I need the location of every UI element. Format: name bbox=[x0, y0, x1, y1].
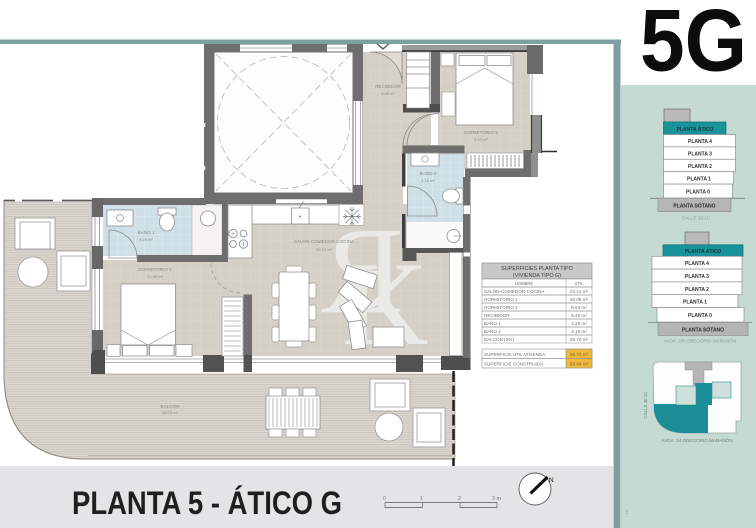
svg-text:CALLE 30.1C: CALLE 30.1C bbox=[643, 392, 648, 419]
svg-text:PLANTA SÓTANO: PLANTA SÓTANO bbox=[673, 201, 715, 209]
svg-text:BAÑO 2: BAÑO 2 bbox=[484, 328, 501, 334]
svg-text:NOMBRE: NOMBRE bbox=[515, 281, 534, 286]
svg-text:4.29 m²: 4.29 m² bbox=[571, 321, 587, 326]
svg-text:PLANTA 1: PLANTA 1 bbox=[683, 300, 707, 306]
svg-text:PLANTA 5 - ÁTICO G: PLANTA 5 - ÁTICO G bbox=[72, 485, 342, 521]
svg-text:8.48 m²: 8.48 m² bbox=[381, 91, 395, 96]
svg-text:39.70 m²: 39.70 m² bbox=[162, 410, 178, 415]
svg-text:BAÑO 1: BAÑO 1 bbox=[138, 229, 155, 235]
svg-text:PLANTA 3: PLANTA 3 bbox=[688, 152, 712, 158]
svg-text:PLANTA 2: PLANTA 2 bbox=[685, 287, 709, 293]
svg-text:PLANTA ÁTICO: PLANTA ÁTICO bbox=[677, 126, 714, 133]
svg-text:PLANTA 1: PLANTA 1 bbox=[687, 176, 711, 182]
svg-text:PLANTA 0: PLANTA 0 bbox=[688, 313, 712, 319]
svg-text:4.15 m²: 4.15 m² bbox=[421, 178, 435, 183]
svg-text:4.29 m²: 4.29 m² bbox=[139, 237, 153, 242]
svg-text:23.12 m²: 23.12 m² bbox=[316, 247, 332, 252]
svg-text:PLANTA 0: PLANTA 0 bbox=[686, 190, 710, 196]
svg-text:88.44 m²: 88.44 m² bbox=[570, 362, 589, 367]
svg-text:PLANTA 2: PLANTA 2 bbox=[688, 164, 712, 170]
svg-text:4.15 m²: 4.15 m² bbox=[571, 329, 587, 334]
svg-text:BAÑO 2: BAÑO 2 bbox=[420, 170, 437, 176]
svg-text:5G: 5G bbox=[640, 0, 747, 90]
svg-text:SALÓN-COMEDOR-COCINA: SALÓN-COMEDOR-COCINA bbox=[484, 288, 545, 294]
svg-text:95.72 m²: 95.72 m² bbox=[570, 352, 589, 357]
svg-text:N: N bbox=[549, 477, 554, 484]
svg-text:5.49 m²: 5.49 m² bbox=[571, 313, 587, 318]
svg-text:SUPERFICIE ÚTIL VIVIENDA: SUPERFICIE ÚTIL VIVIENDA bbox=[484, 351, 546, 357]
svg-text:CALLE 30.1C: CALLE 30.1C bbox=[682, 216, 711, 221]
svg-text:10.08 m²: 10.08 m² bbox=[570, 297, 589, 302]
svg-text:ÚTIL: ÚTIL bbox=[574, 281, 584, 286]
svg-text:SALÓN-COMEDOR-COCINA: SALÓN-COMEDOR-COCINA bbox=[294, 238, 355, 244]
svg-text:RECIBIDOR: RECIBIDOR bbox=[484, 313, 510, 318]
svg-text:AVDA. DR GREGORIO MARAÑÓN: AVDA. DR GREGORIO MARAÑÓN bbox=[664, 338, 737, 344]
svg-text:BALCÓN: BALCÓN bbox=[161, 403, 180, 409]
svg-text:RECIBIDOR: RECIBIDOR bbox=[375, 84, 401, 89]
svg-text:r k: r k bbox=[624, 510, 629, 514]
svg-text:DORMITORIO 2: DORMITORIO 2 bbox=[464, 130, 498, 135]
svg-text:DORMITORIO 1: DORMITORIO 1 bbox=[138, 267, 172, 272]
svg-text:AVDA. 34 GREGORIO MARAÑÓN: AVDA. 34 GREGORIO MARAÑÓN bbox=[661, 437, 732, 443]
svg-text:DORMITORIO 1: DORMITORIO 1 bbox=[484, 297, 518, 302]
svg-text:PLANTA 4: PLANTA 4 bbox=[685, 261, 709, 267]
svg-text:PLANTA 4: PLANTA 4 bbox=[688, 139, 712, 145]
svg-text:PLANTA SÓTANO: PLANTA SÓTANO bbox=[682, 325, 724, 333]
svg-text:8.53 m²: 8.53 m² bbox=[474, 137, 488, 142]
svg-text:0: 0 bbox=[383, 496, 386, 502]
svg-text:DORMITORIO 2: DORMITORIO 2 bbox=[484, 305, 518, 310]
svg-text:SUPERFICIES PLANTA TIPO: SUPERFICIES PLANTA TIPO bbox=[501, 266, 573, 272]
svg-text:10.08 m²: 10.08 m² bbox=[147, 274, 163, 279]
svg-text:SUPERFICIE CONSTRUIDA: SUPERFICIE CONSTRUIDA bbox=[484, 362, 544, 367]
svg-text:(VIVIENDA TIPO G): (VIVIENDA TIPO G) bbox=[513, 273, 561, 279]
svg-text:PLANTA 3: PLANTA 3 bbox=[685, 274, 709, 280]
svg-text:2: 2 bbox=[458, 496, 461, 502]
svg-text:1: 1 bbox=[420, 496, 423, 502]
svg-text:PLANTA ÁTICO: PLANTA ÁTICO bbox=[685, 248, 722, 255]
svg-text:BAÑO 1: BAÑO 1 bbox=[484, 320, 501, 326]
svg-text:3 m: 3 m bbox=[492, 496, 501, 502]
svg-text:39.70 m²: 39.70 m² bbox=[570, 337, 589, 342]
svg-text:23.12 m²: 23.12 m² bbox=[570, 289, 589, 294]
svg-text:BALCÓN (0%): BALCÓN (0%) bbox=[484, 336, 514, 342]
svg-text:8.53 m²: 8.53 m² bbox=[571, 305, 587, 310]
